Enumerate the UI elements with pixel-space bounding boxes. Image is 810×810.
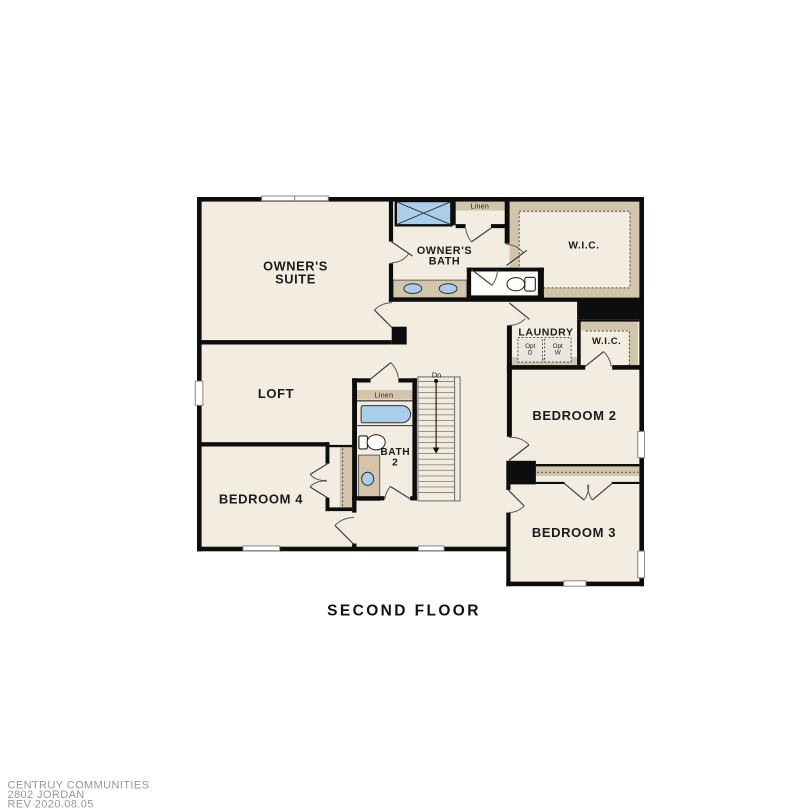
svg-text:W: W (555, 349, 561, 356)
svg-text:BATH: BATH (429, 255, 461, 267)
svg-text:Linen: Linen (375, 392, 394, 399)
svg-text:W.I.C.: W.I.C. (568, 240, 599, 251)
svg-text:W.I.C.: W.I.C. (592, 336, 621, 347)
svg-text:BEDROOM 2: BEDROOM 2 (532, 408, 616, 423)
svg-text:REV 2020.08.05: REV 2020.08.05 (8, 799, 94, 810)
svg-text:2: 2 (392, 458, 398, 469)
svg-text:LOFT: LOFT (258, 386, 294, 401)
svg-text:LAUNDRY: LAUNDRY (518, 326, 573, 338)
svg-text:BEDROOM 3: BEDROOM 3 (532, 525, 616, 540)
svg-text:Dn: Dn (432, 370, 441, 379)
svg-text:SUITE: SUITE (275, 272, 316, 287)
svg-text:BEDROOM 4: BEDROOM 4 (219, 491, 303, 506)
svg-text:D: D (528, 349, 533, 356)
svg-text:Linen: Linen (470, 204, 489, 211)
svg-text:SECOND FLOOR: SECOND FLOOR (327, 603, 481, 620)
svg-text:BATH: BATH (380, 447, 410, 458)
